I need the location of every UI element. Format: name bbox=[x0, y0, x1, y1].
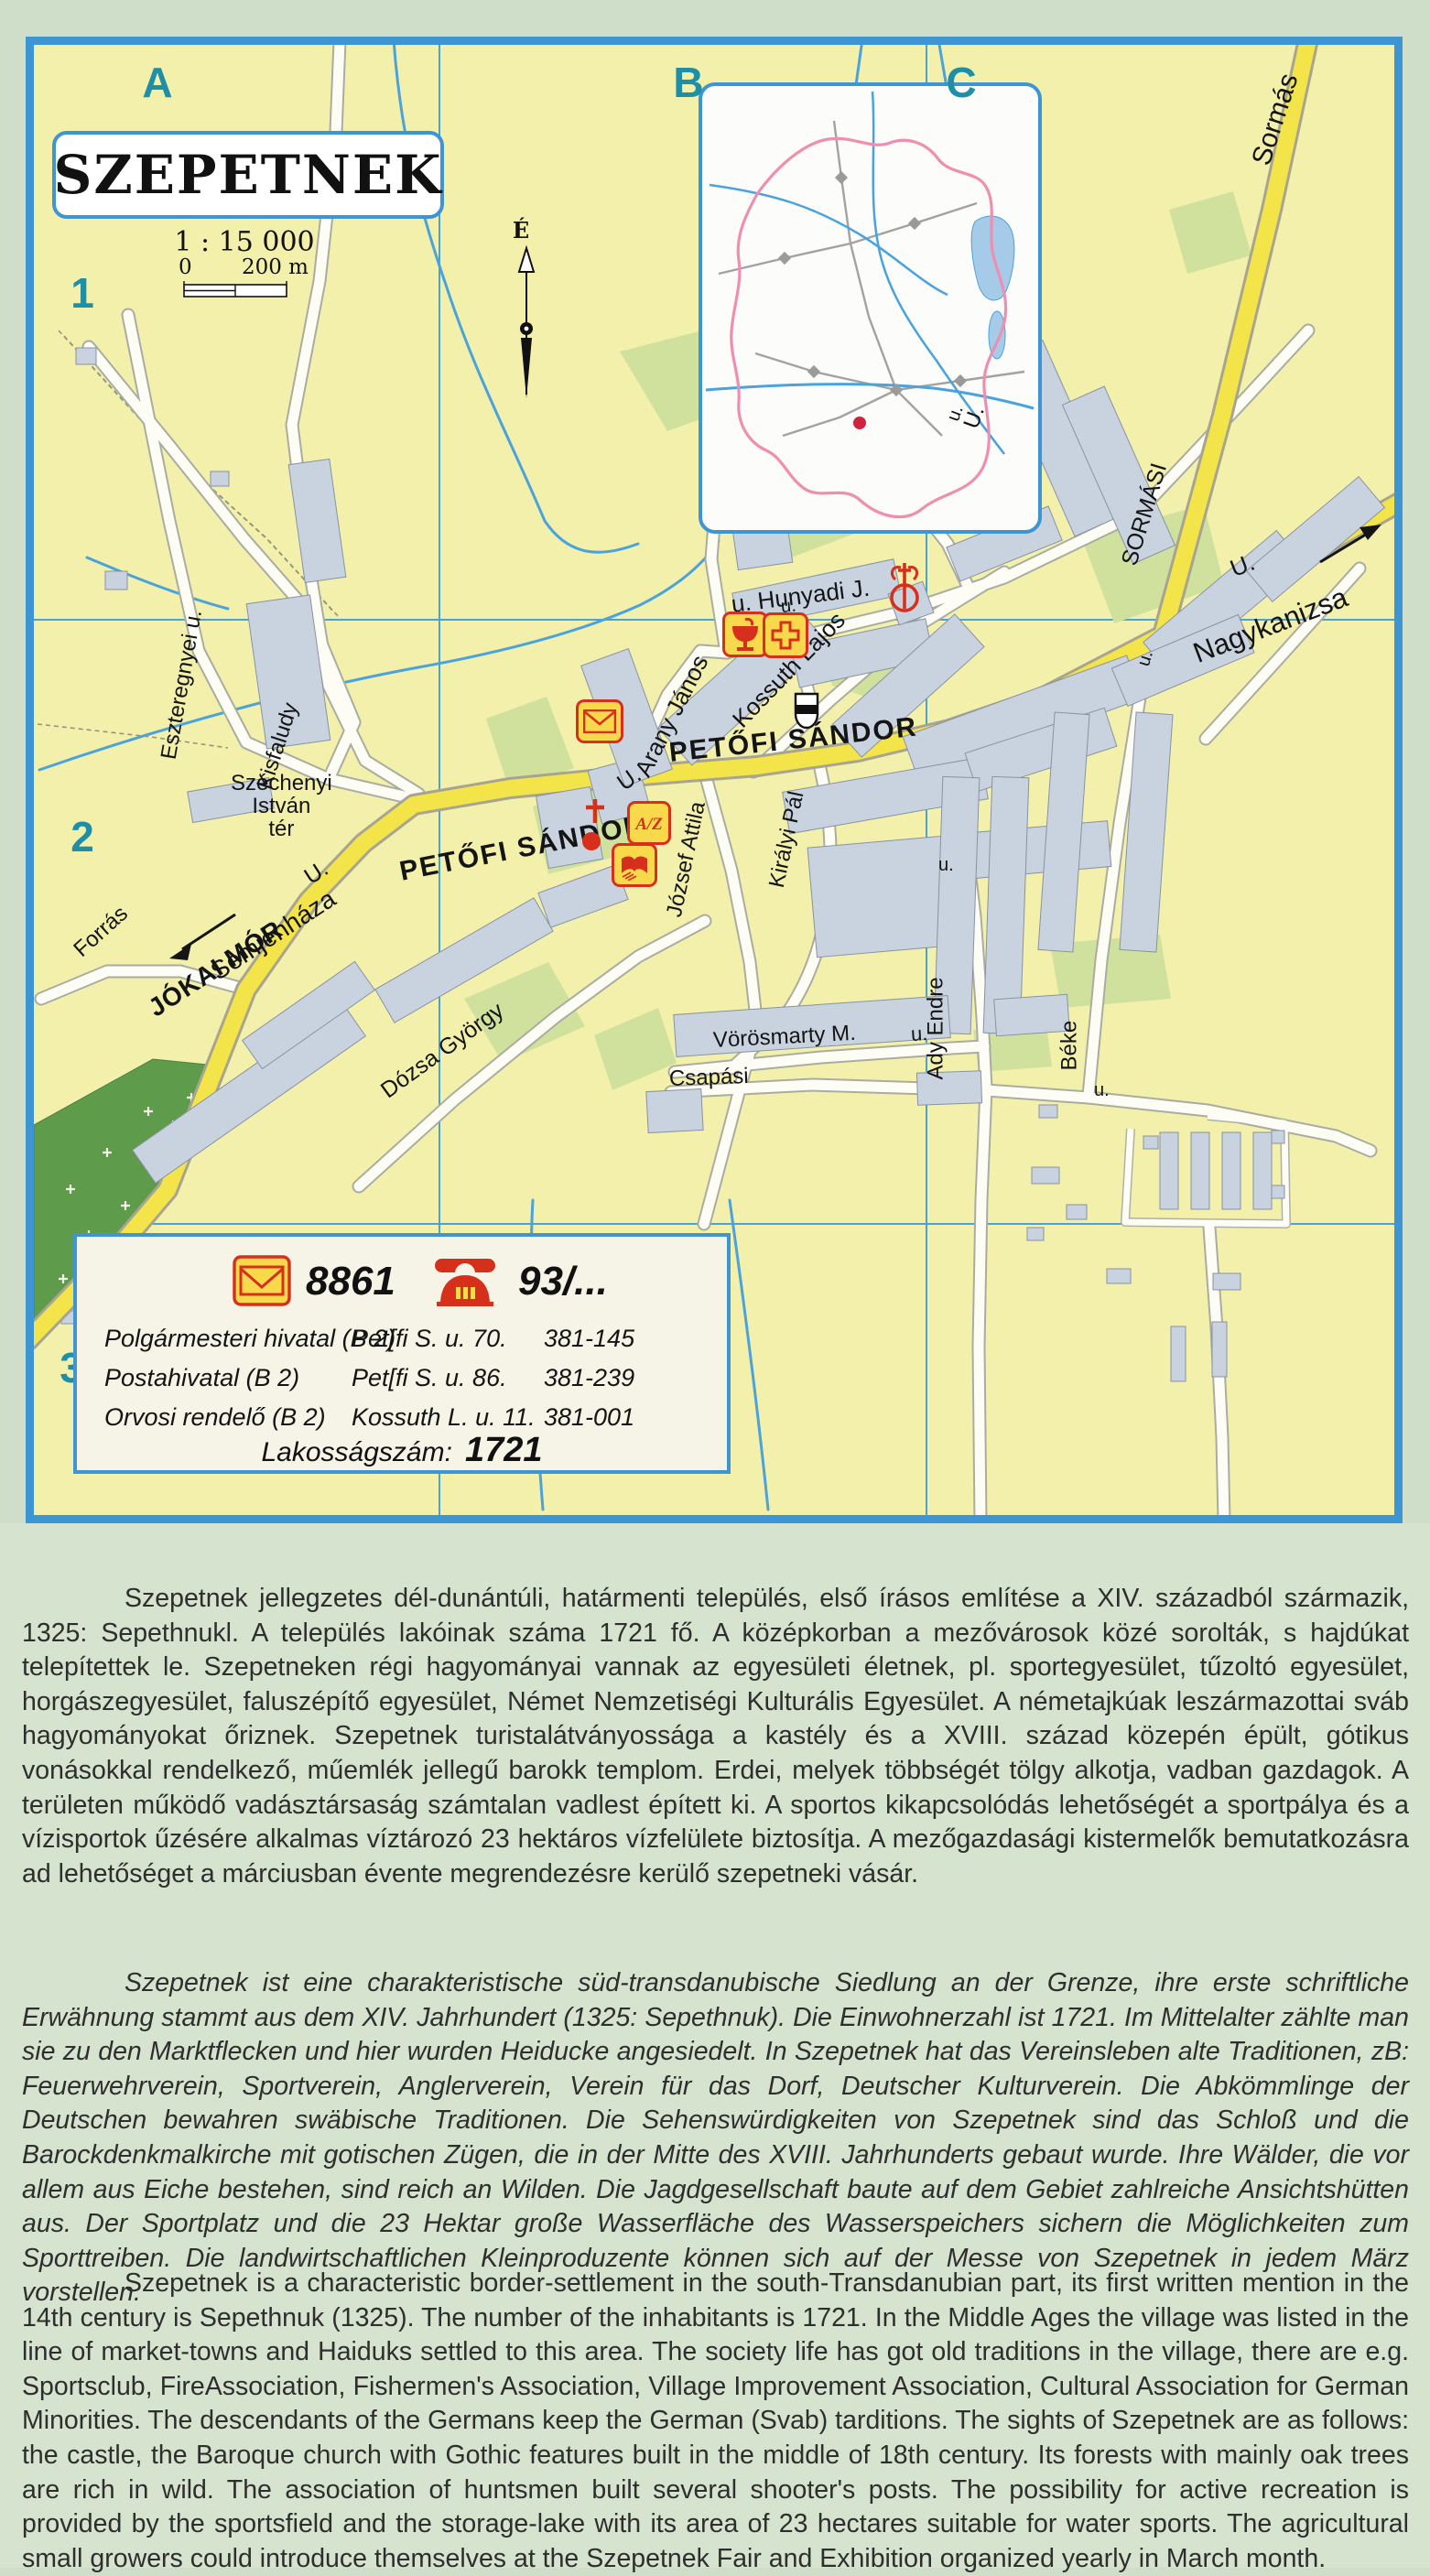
street-label: Széchenyi István tér bbox=[231, 773, 332, 841]
population-line: Lakosságszám:1721 bbox=[77, 1431, 727, 1470]
map-scale: 1 : 15 000 bbox=[171, 226, 318, 258]
grid-row-1: 1 bbox=[60, 268, 105, 318]
street-label: u. bbox=[938, 856, 954, 875]
scale-bar bbox=[177, 279, 296, 308]
post-office-icon bbox=[576, 699, 623, 743]
school-book-icon bbox=[612, 843, 657, 887]
legend-entry-name: Orvosi rendelő (B 2) bbox=[104, 1403, 326, 1432]
grid-column-b: B bbox=[666, 58, 711, 107]
legend-postcode: 8861 bbox=[306, 1259, 395, 1304]
legend-entry-phone: 381-001 bbox=[544, 1403, 634, 1432]
az-icon-label: A/Z bbox=[634, 815, 663, 834]
castle-icon bbox=[883, 557, 926, 622]
bus-stop-icon bbox=[794, 692, 819, 735]
north-arrow-icon bbox=[501, 241, 552, 415]
paragraph-hungarian: Szepetnek jellegzetes dél-dunántúli, hat… bbox=[22, 1582, 1409, 1891]
street-label: Csapási bbox=[669, 1066, 750, 1091]
paragraph-english: Szepetnek is a characteristic border-set… bbox=[22, 2267, 1409, 2576]
legend-entry-address: Pet[fi S. u. 70. bbox=[352, 1325, 507, 1353]
grid-row-2: 2 bbox=[60, 812, 105, 861]
legend-entry-address: Pet[fi S. u. 86. bbox=[352, 1364, 507, 1392]
town-map: SZEPETNEK 1 : 15 000 0 200 m É A B C 1 2… bbox=[26, 37, 1403, 1523]
legend-entry-phone: 381-145 bbox=[544, 1325, 634, 1353]
population-label: Lakosságszám: bbox=[262, 1437, 452, 1467]
church-icon bbox=[578, 797, 612, 859]
pharmacy-icon bbox=[722, 612, 768, 657]
population-value: 1721 bbox=[465, 1431, 543, 1469]
grid-column-c: C bbox=[938, 58, 984, 107]
legend-phone-prefix: 93/... bbox=[518, 1259, 608, 1304]
inset-boundary bbox=[731, 138, 1006, 516]
legend-phone-icon bbox=[432, 1255, 498, 1313]
az-pharmacy-icon: A/Z bbox=[627, 801, 671, 845]
legend-box: 8861 93/... Polgármesteri hivatal (B 2) … bbox=[73, 1233, 731, 1474]
medical-cross-icon bbox=[763, 612, 808, 658]
grid-column-a: A bbox=[135, 58, 180, 107]
street-label: u. bbox=[1094, 1081, 1110, 1100]
legend-entry-address: Kossuth L. u. 11. bbox=[352, 1403, 536, 1432]
scale-distance: 200 m bbox=[241, 255, 309, 279]
page: { "map": { "title": "SZEPETNEK", "scale"… bbox=[0, 0, 1430, 2568]
street-label: Béke bbox=[1059, 1021, 1082, 1071]
legend-entry-name: Postahivatal (B 2) bbox=[104, 1364, 299, 1392]
paragraph-german: Szepetnek ist eine charakteristische süd… bbox=[22, 1966, 1409, 2311]
street-label: Ady Endre bbox=[926, 977, 948, 1079]
legend-post-icon bbox=[233, 1255, 291, 1311]
inset-overview-map bbox=[699, 82, 1042, 534]
inset-town-dot bbox=[853, 417, 866, 429]
legend-entry-phone: 381-239 bbox=[544, 1364, 634, 1392]
north-label: É bbox=[503, 217, 539, 244]
map-title: SZEPETNEK bbox=[53, 144, 442, 206]
scale-zero: 0 bbox=[179, 255, 192, 279]
map-title-box: SZEPETNEK bbox=[52, 131, 444, 219]
